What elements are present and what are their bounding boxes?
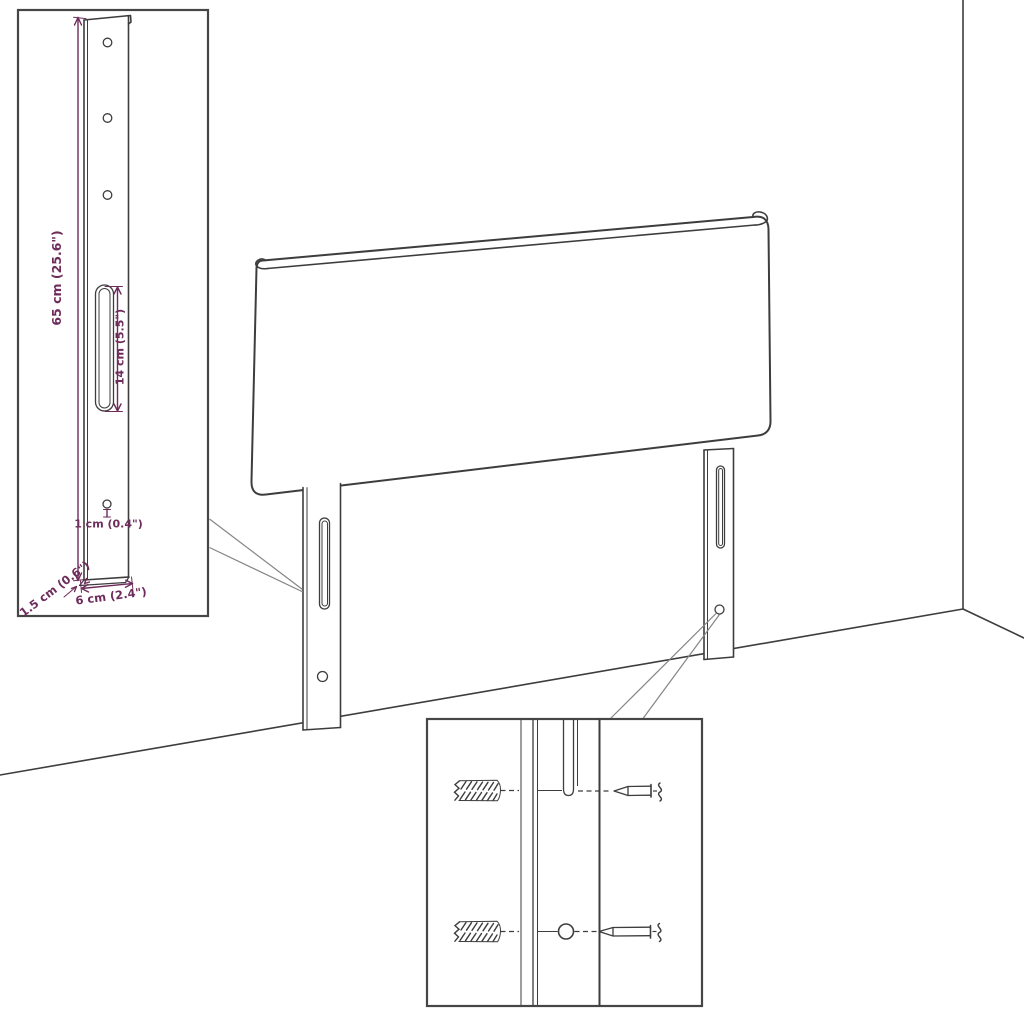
- dim-slot-label: 14 cm (5.5"): [114, 309, 127, 385]
- mounting-inset-frame: [427, 719, 702, 1006]
- mounting-detail-inset: [427, 719, 702, 1006]
- leg-detail-inset: 65 cm (25.6") 14 cm (5.5") 1 cm (0.4") 1…: [17, 10, 208, 620]
- headboard-outline: [251, 217, 770, 495]
- dim-height-label: 65 cm (25.6"): [49, 230, 64, 325]
- headboard-panel: [251, 212, 770, 495]
- callout-bottom-inset: [611, 614, 720, 719]
- callout-left-inset: [210, 519, 304, 592]
- assembly-diagram: 65 cm (25.6") 14 cm (5.5") 1 cm (0.4") 1…: [0, 0, 1024, 1024]
- left-leg-body: [303, 483, 341, 730]
- floor-edge-right: [963, 609, 1024, 638]
- left-mounting-leg: [303, 483, 341, 730]
- dim-hole-label: 1 cm (0.4"): [74, 518, 143, 531]
- right-mounting-leg: [704, 449, 734, 660]
